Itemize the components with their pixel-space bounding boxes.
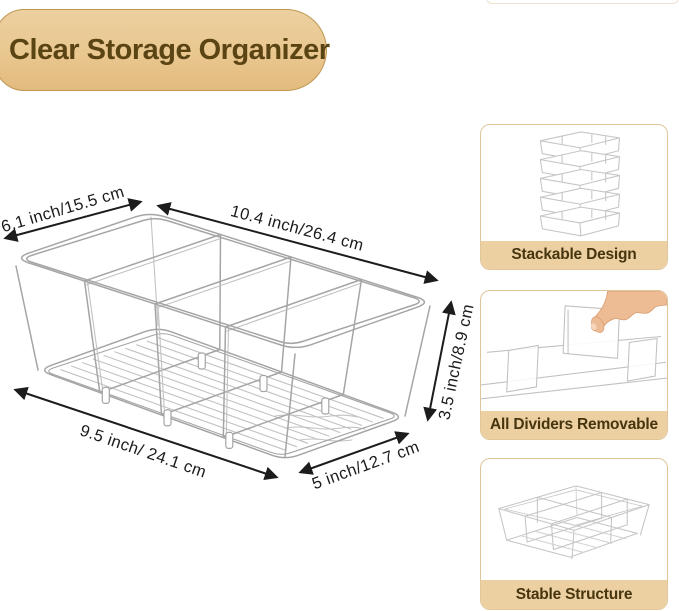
- feature-card-stable: Stable Structure: [480, 458, 668, 610]
- feature-label-removable: All Dividers Removable: [490, 416, 658, 434]
- divided-bin-illustration: [481, 459, 667, 580]
- feature-strip: All Dividers Removable: [481, 411, 667, 439]
- feature-card-removable: All Dividers Removable: [480, 290, 668, 440]
- feature-label-stable: Stable Structure: [516, 586, 633, 604]
- product-infographic: 6.1 inch/15.5 cm 10.4 inch/26.4 cm 9.5 i…: [0, 0, 679, 611]
- page-title: Clear Storage Organizer: [0, 34, 330, 67]
- stacked-bins-illustration: [481, 125, 667, 241]
- feature-strip: Stackable Design: [481, 241, 667, 269]
- feature-strip: Stable Structure: [481, 580, 667, 609]
- feature-label-stackable: Stackable Design: [511, 246, 636, 264]
- hand-removing-divider-illustration: [481, 291, 667, 411]
- hand-icon: [589, 291, 667, 335]
- title-banner: Clear Storage Organizer: [0, 9, 327, 91]
- feature-card-stackable: Stackable Design: [480, 124, 668, 270]
